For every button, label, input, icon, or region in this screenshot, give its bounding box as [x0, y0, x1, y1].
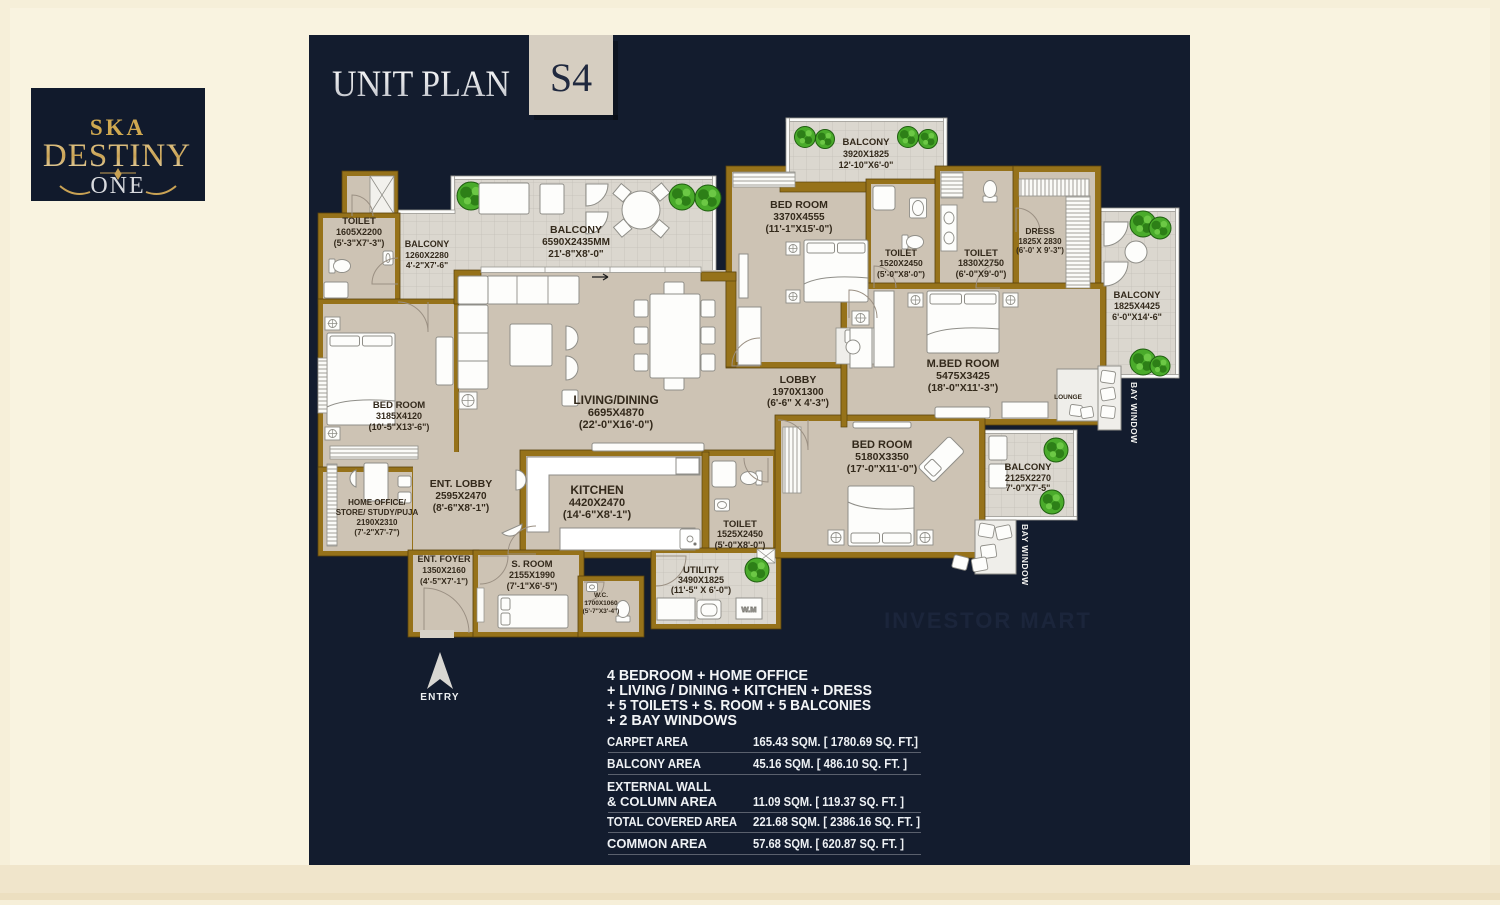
svg-text:1350X2160: 1350X2160 [422, 565, 466, 575]
svg-text:12'-10"X6'-0": 12'-10"X6'-0" [839, 160, 894, 170]
svg-text:S. ROOM: S. ROOM [511, 559, 552, 570]
svg-text:1605X2200: 1605X2200 [336, 227, 382, 237]
svg-text:6695X4870: 6695X4870 [588, 407, 644, 419]
svg-text:BALCONY: BALCONY [550, 224, 602, 236]
svg-text:(7'-2"X7'-7"): (7'-2"X7'-7") [354, 528, 400, 537]
svg-text:TOTAL COVERED AREA: TOTAL COVERED AREA [607, 814, 738, 829]
svg-text:BALCONY AREA: BALCONY AREA [607, 756, 702, 771]
svg-text:EXTERNAL WALL: EXTERNAL WALL [607, 779, 711, 794]
svg-text:BED ROOM: BED ROOM [770, 199, 828, 211]
svg-text:LIVING/DINING: LIVING/DINING [573, 393, 658, 407]
svg-text:S4: S4 [550, 55, 592, 100]
svg-text:M.BED ROOM: M.BED ROOM [927, 358, 1000, 370]
svg-text:2595X2470: 2595X2470 [435, 491, 487, 502]
svg-text:(14'-6"X8'-1"): (14'-6"X8'-1") [563, 509, 632, 521]
svg-text:(6'-0"X9'-0"): (6'-0"X9'-0") [956, 269, 1007, 279]
svg-text:& COLUMN AREA: & COLUMN AREA [607, 794, 718, 809]
svg-text:1260X2280: 1260X2280 [405, 250, 449, 260]
svg-text:(6'-6" X 4'-3"): (6'-6" X 4'-3") [767, 398, 829, 409]
svg-text:1825X 2830: 1825X 2830 [1018, 237, 1062, 246]
svg-text:2125X2270: 2125X2270 [1005, 473, 1051, 483]
svg-text:1970X1300: 1970X1300 [772, 387, 824, 398]
svg-text:(5'-0"X8'-0"): (5'-0"X8'-0") [715, 540, 766, 550]
svg-text:3185X4120: 3185X4120 [376, 411, 422, 421]
svg-text:HOME OFFICE/: HOME OFFICE/ [348, 498, 407, 507]
svg-text:UNIT PLAN: UNIT PLAN [332, 64, 510, 105]
svg-text:21'-8"X8'-0": 21'-8"X8'-0" [548, 249, 604, 260]
svg-text:COMMON AREA: COMMON AREA [607, 836, 708, 851]
svg-text:BAY WINDOW: BAY WINDOW [1020, 524, 1030, 586]
svg-text:TOILET: TOILET [342, 216, 376, 227]
svg-text:(22'-0"X16'-0"): (22'-0"X16'-0") [579, 419, 654, 431]
svg-text:1825X4425: 1825X4425 [1114, 301, 1160, 311]
svg-text:1520X2450: 1520X2450 [879, 258, 923, 268]
svg-text:1525X2450: 1525X2450 [717, 529, 763, 539]
svg-text:BED ROOM: BED ROOM [373, 400, 425, 411]
svg-text:(5'-7"X3'-4"): (5'-7"X3'-4") [583, 608, 620, 615]
svg-text:165.43 SQM. [ 1780.69 SQ. FT.]: 165.43 SQM. [ 1780.69 SQ. FT.] [753, 734, 918, 749]
svg-text:3490X1825: 3490X1825 [678, 575, 724, 585]
svg-text:ENTRY: ENTRY [420, 692, 460, 703]
svg-text:6590X2435MM: 6590X2435MM [542, 237, 610, 248]
svg-text:4'-2"X7'-6": 4'-2"X7'-6" [406, 260, 448, 270]
svg-text:(4'-5"X7'-1"): (4'-5"X7'-1") [420, 576, 468, 586]
svg-text:BALCONY: BALCONY [405, 239, 450, 249]
svg-text:7'-0"X7'-5": 7'-0"X7'-5" [1006, 483, 1051, 493]
svg-text:2155X1990: 2155X1990 [509, 570, 555, 580]
svg-text:(5'-3"X7'-3"): (5'-3"X7'-3") [334, 238, 385, 248]
svg-text:DESTINY: DESTINY [43, 138, 191, 174]
svg-text:BAY WINDOW: BAY WINDOW [1129, 382, 1139, 444]
svg-text:221.68 SQM. [ 2386.16 SQ. FT.: 221.68 SQM. [ 2386.16 SQ. FT. ] [753, 814, 920, 829]
svg-text:57.68 SQM. [ 620.87 SQ. FT. ]: 57.68 SQM. [ 620.87 SQ. FT. ] [753, 836, 904, 851]
svg-text:(18'-0"X11'-3"): (18'-0"X11'-3") [928, 382, 998, 394]
svg-text:W.C.: W.C. [594, 592, 608, 599]
svg-text:W.M: W.M [742, 605, 757, 614]
svg-text:DRESS: DRESS [1025, 226, 1055, 236]
svg-text:CARPET AREA: CARPET AREA [607, 734, 689, 749]
svg-text:3920X1825: 3920X1825 [843, 149, 889, 159]
svg-text:1700X1060: 1700X1060 [584, 600, 618, 607]
svg-text:+ 2 BAY WINDOWS: + 2 BAY WINDOWS [607, 712, 737, 729]
svg-text:LOBBY: LOBBY [780, 374, 817, 386]
svg-text:5180X3350: 5180X3350 [855, 451, 909, 463]
svg-text:6'-0"X14'-6": 6'-0"X14'-6" [1112, 312, 1162, 322]
svg-text:(8'-6"X8'-1"): (8'-6"X8'-1") [433, 503, 489, 514]
svg-text:BALCONY: BALCONY [843, 137, 891, 148]
svg-text:45.16 SQM. [ 486.10 SQ. FT. ]: 45.16 SQM. [ 486.10 SQ. FT. ] [753, 756, 907, 771]
svg-text:4420X2470: 4420X2470 [569, 497, 625, 509]
svg-text:SKA: SKA [90, 115, 146, 140]
svg-text:LOUNGE: LOUNGE [1054, 394, 1082, 401]
svg-text:(6'-0' X 9'-3"): (6'-0' X 9'-3") [1016, 246, 1064, 255]
svg-text:BALCONY: BALCONY [1114, 290, 1162, 301]
svg-text:BALCONY: BALCONY [1005, 462, 1053, 473]
svg-text:(5'-0"X8'-0"): (5'-0"X8'-0") [877, 269, 925, 279]
svg-text:ENT. LOBBY: ENT. LOBBY [430, 478, 492, 490]
svg-text:BED ROOM: BED ROOM [852, 439, 913, 451]
svg-text:(11'-5" X 6'-0"): (11'-5" X 6'-0") [671, 585, 731, 595]
svg-text:(7'-1"X6'-5"): (7'-1"X6'-5") [507, 581, 558, 591]
svg-text:3370X4555: 3370X4555 [773, 212, 825, 223]
svg-text:2190X2310: 2190X2310 [357, 518, 398, 527]
svg-text:STORE/ STUDY/PUJA: STORE/ STUDY/PUJA [336, 508, 419, 517]
svg-text:INVESTOR MART: INVESTOR MART [884, 608, 1092, 633]
svg-text:(10'-5"X13'-6"): (10'-5"X13'-6") [369, 422, 430, 432]
svg-text:5475X3425: 5475X3425 [936, 370, 990, 382]
svg-text:KITCHEN: KITCHEN [570, 483, 623, 497]
svg-text:ENT. FOYER: ENT. FOYER [417, 554, 471, 564]
svg-text:(17'-0"X11'-0"): (17'-0"X11'-0") [847, 463, 917, 475]
svg-text:(11'-1"X15'-0"): (11'-1"X15'-0") [765, 224, 832, 235]
svg-text:TOILET: TOILET [885, 248, 917, 258]
svg-text:1830X2750: 1830X2750 [958, 258, 1004, 268]
svg-text:11.09 SQM. [ 119.37 SQ. FT. ]: 11.09 SQM. [ 119.37 SQ. FT. ] [753, 794, 904, 809]
